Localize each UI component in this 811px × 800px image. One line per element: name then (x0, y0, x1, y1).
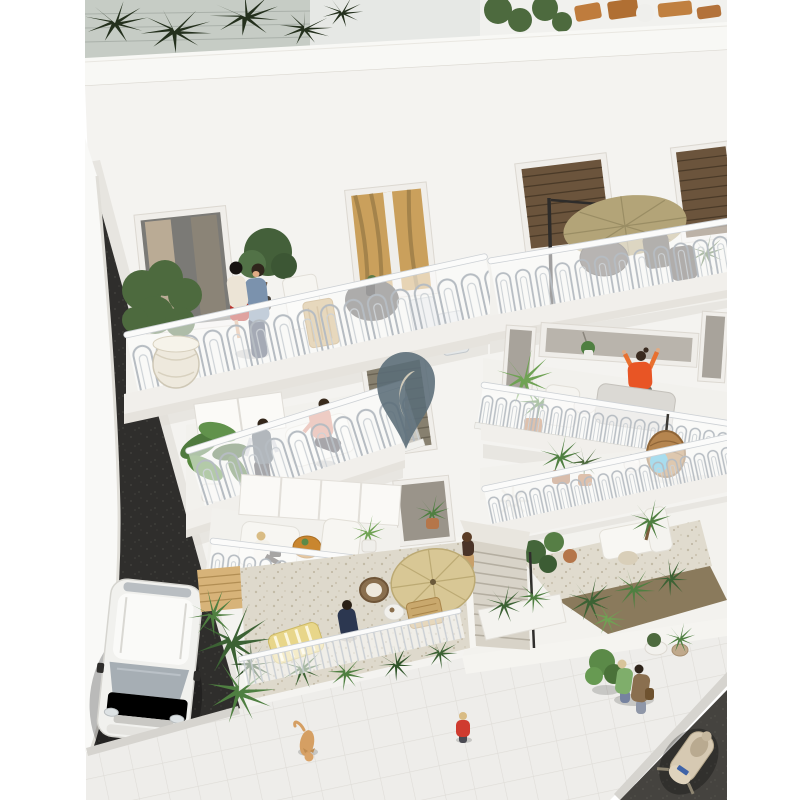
tall-window (698, 311, 730, 383)
van-roof (112, 592, 194, 666)
hanging-basket-planter (153, 336, 199, 388)
satchel-bag (645, 688, 654, 700)
rattan-chair (360, 578, 388, 602)
terracotta-pot (563, 549, 577, 563)
cat-head (305, 753, 314, 762)
woman-head (230, 262, 243, 275)
round-table (618, 551, 638, 565)
wood-slat-fence (197, 566, 244, 612)
van-mirror (193, 671, 201, 682)
van-mirror (96, 663, 104, 674)
entry-door (393, 475, 456, 546)
architectural-rendering (0, 0, 811, 800)
